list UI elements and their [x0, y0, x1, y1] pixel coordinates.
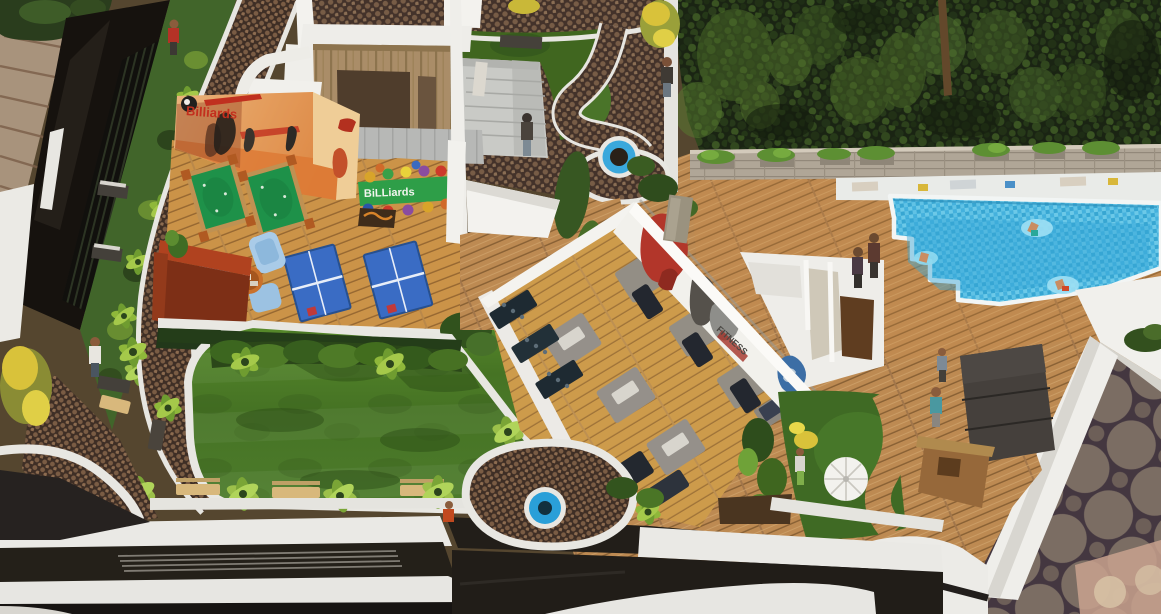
svg-text:BiLLiards: BiLLiards [364, 186, 415, 200]
